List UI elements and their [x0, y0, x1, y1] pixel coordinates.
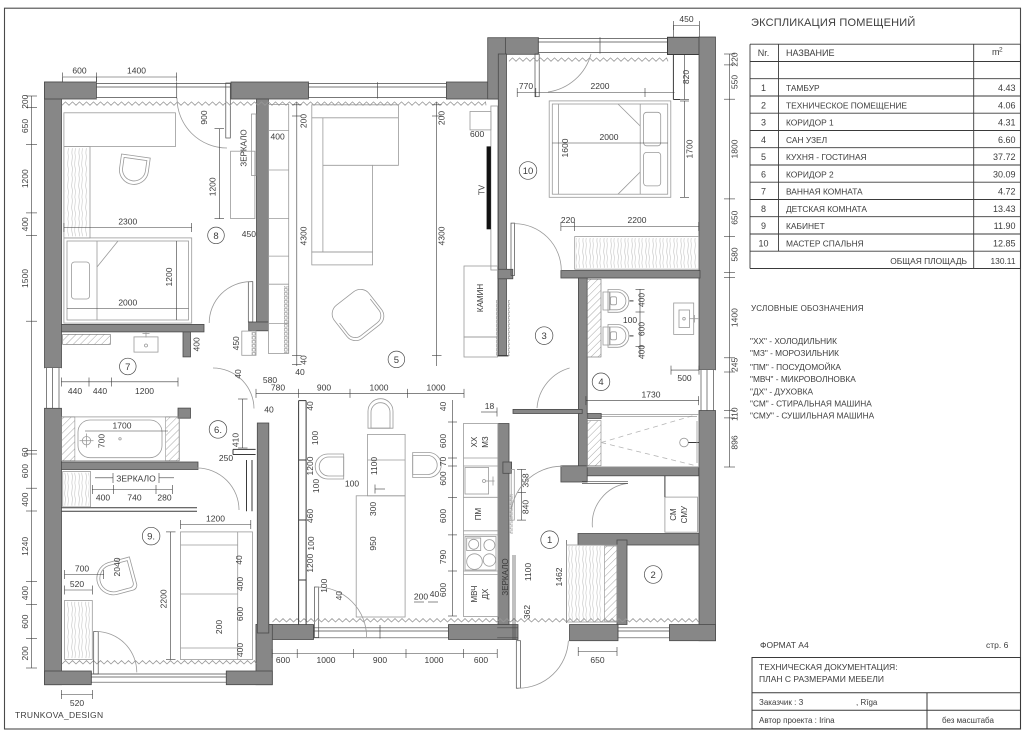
svg-text:40: 40	[430, 589, 440, 599]
svg-text:без масштаба: без масштаба	[942, 716, 994, 725]
svg-text:4300: 4300	[437, 226, 447, 245]
svg-text:1800: 1800	[730, 139, 740, 158]
svg-text:2: 2	[999, 47, 1003, 54]
svg-text:5: 5	[761, 152, 766, 162]
svg-text:СМУ: СМУ	[680, 505, 689, 523]
svg-text:700: 700	[75, 564, 89, 574]
svg-text:, Rīga: , Rīga	[856, 698, 878, 707]
svg-text:10: 10	[523, 166, 534, 177]
svg-text:3: 3	[761, 118, 766, 128]
svg-text:1462: 1462	[554, 567, 564, 586]
svg-text:1000: 1000	[427, 382, 446, 392]
svg-text:40: 40	[334, 591, 344, 601]
svg-text:6.60: 6.60	[998, 135, 1016, 145]
svg-text:КОРИДОР 1: КОРИДОР 1	[786, 118, 834, 128]
svg-text:100: 100	[623, 315, 637, 325]
svg-text:"МЗ" - МОРОЗИЛЬНИК: "МЗ" - МОРОЗИЛЬНИК	[750, 348, 839, 358]
svg-text:1400: 1400	[127, 66, 146, 76]
svg-text:1700: 1700	[113, 421, 132, 431]
svg-text:"МВЧ" - МИКРОВОЛНОВКА: "МВЧ" - МИКРОВОЛНОВКА	[750, 374, 856, 384]
svg-text:400: 400	[192, 337, 202, 351]
svg-text:4.06: 4.06	[998, 101, 1016, 111]
svg-text:400: 400	[271, 132, 285, 142]
svg-text:9: 9	[761, 221, 766, 231]
svg-text:580: 580	[730, 247, 740, 261]
svg-text:580: 580	[263, 375, 277, 385]
svg-text:КУХНЯ - ГОСТИНАЯ: КУХНЯ - ГОСТИНАЯ	[786, 152, 867, 162]
svg-text:МЗ: МЗ	[481, 436, 490, 448]
svg-text:400: 400	[96, 493, 110, 503]
svg-text:600: 600	[438, 509, 448, 523]
svg-text:400: 400	[20, 586, 30, 600]
svg-text:200: 200	[414, 592, 428, 602]
svg-text:8: 8	[213, 231, 218, 242]
svg-text:2: 2	[761, 101, 766, 111]
svg-text:3: 3	[541, 331, 546, 342]
svg-text:60: 60	[20, 447, 30, 457]
svg-text:770: 770	[519, 81, 533, 91]
svg-text:250: 250	[219, 453, 233, 463]
svg-text:Заказчик : З: Заказчик : З	[759, 698, 804, 707]
svg-text:450: 450	[242, 229, 256, 239]
svg-text:1240: 1240	[20, 537, 30, 556]
svg-text:37.72: 37.72	[993, 152, 1016, 162]
svg-text:7: 7	[125, 362, 130, 373]
svg-text:1600: 1600	[560, 138, 570, 157]
svg-text:1: 1	[547, 535, 552, 546]
svg-text:1: 1	[761, 83, 766, 93]
svg-text:"СМУ" - СУШИЛЬНАЯ МАШИНА: "СМУ" - СУШИЛЬНАЯ МАШИНА	[750, 411, 875, 421]
svg-text:40: 40	[305, 401, 315, 411]
svg-text:САН УЗЕЛ: САН УЗЕЛ	[786, 135, 827, 145]
svg-text:1200: 1200	[305, 456, 315, 475]
svg-text:ДХ: ДХ	[481, 588, 490, 599]
svg-text:1700: 1700	[685, 139, 695, 158]
svg-text:1100: 1100	[369, 457, 379, 476]
svg-text:Автор проекта : Irina: Автор проекта : Irina	[759, 716, 835, 725]
svg-text:220: 220	[730, 52, 740, 66]
svg-text:900: 900	[373, 655, 387, 665]
svg-text:1730: 1730	[642, 389, 661, 399]
svg-text:950: 950	[368, 536, 378, 550]
svg-text:ТАМБУР: ТАМБУР	[786, 83, 820, 93]
svg-text:2000: 2000	[118, 298, 137, 308]
svg-text:2200: 2200	[628, 215, 647, 225]
svg-text:40: 40	[299, 355, 309, 365]
svg-text:100: 100	[319, 578, 329, 592]
svg-text:220: 220	[561, 215, 575, 225]
svg-text:2040: 2040	[112, 557, 122, 576]
svg-text:40: 40	[234, 555, 244, 565]
svg-text:100: 100	[306, 536, 316, 550]
svg-text:"ХХ" - ХОЛОДИЛЬНИК: "ХХ" - ХОЛОДИЛЬНИК	[750, 336, 837, 346]
svg-text:100: 100	[311, 479, 321, 493]
svg-text:820: 820	[681, 70, 691, 84]
svg-text:2300: 2300	[118, 217, 137, 227]
svg-text:500: 500	[677, 373, 691, 383]
svg-text:900: 900	[317, 382, 331, 392]
svg-text:600: 600	[470, 129, 484, 139]
svg-text:КАБИНЕТ: КАБИНЕТ	[786, 221, 825, 231]
svg-text:410: 410	[231, 433, 241, 447]
svg-text:200: 200	[214, 620, 224, 634]
svg-text:300: 300	[368, 502, 378, 516]
svg-text:600: 600	[20, 464, 30, 478]
svg-text:700: 700	[97, 434, 107, 448]
svg-text:ЗЕРКАЛО: ЗЕРКАЛО	[501, 558, 510, 595]
svg-text:100: 100	[345, 479, 359, 489]
svg-text:12.85: 12.85	[993, 239, 1016, 249]
svg-text:600: 600	[438, 583, 448, 597]
svg-text:245: 245	[730, 358, 740, 372]
svg-text:400: 400	[20, 217, 30, 231]
svg-text:УСЛОВНЫЕ ОБОЗНАЧЕНИЯ: УСЛОВНЫЕ ОБОЗНАЧЕНИЯ	[751, 304, 864, 313]
svg-text:4.43: 4.43	[998, 83, 1016, 93]
svg-text:450: 450	[231, 336, 241, 350]
svg-text:2200: 2200	[591, 81, 610, 91]
svg-text:КАМИН: КАМИН	[476, 284, 485, 312]
svg-text:600: 600	[276, 655, 290, 665]
svg-text:4.72: 4.72	[998, 187, 1016, 197]
svg-text:TRUNKOVA_DESIGN: TRUNKOVA_DESIGN	[15, 710, 103, 720]
svg-text:5: 5	[394, 355, 399, 366]
svg-text:ТЕХНИЧЕСКАЯ ДОКУМЕНТАЦИЯ:: ТЕХНИЧЕСКАЯ ДОКУМЕНТАЦИЯ:	[759, 662, 898, 672]
svg-text:ОБЩАЯ ПЛОЩАДЬ: ОБЩАЯ ПЛОЩАДЬ	[890, 256, 967, 266]
svg-text:НАЗВАНИЕ: НАЗВАНИЕ	[786, 48, 835, 58]
svg-text:400: 400	[235, 643, 245, 657]
svg-text:650: 650	[20, 119, 30, 133]
svg-text:110: 110	[730, 407, 740, 421]
svg-text:840: 840	[521, 500, 531, 514]
svg-text:"СМ" - СТИРАЛЬНАЯ МАШИНА: "СМ" - СТИРАЛЬНАЯ МАШИНА	[750, 399, 872, 409]
svg-text:790: 790	[438, 550, 448, 564]
svg-text:10: 10	[758, 239, 768, 249]
svg-text:Nr.: Nr.	[758, 48, 770, 58]
svg-text:900: 900	[199, 110, 209, 124]
svg-text:6: 6	[761, 170, 766, 180]
svg-text:18: 18	[485, 401, 495, 411]
svg-text:ФОРМАТ А4: ФОРМАТ А4	[760, 640, 809, 650]
svg-text:ТЕХНИЧЕСКОЕ ПОМЕЩЕНИЕ: ТЕХНИЧЕСКОЕ ПОМЕЩЕНИЕ	[786, 101, 907, 111]
svg-text:1000: 1000	[370, 382, 389, 392]
svg-text:440: 440	[68, 386, 82, 396]
svg-text:650: 650	[590, 655, 604, 665]
svg-text:11.90: 11.90	[994, 221, 1016, 231]
svg-text:ЭКСПЛИКАЦИЯ ПОМЕЩЕНИЙ: ЭКСПЛИКАЦИЯ ПОМЕЩЕНИЙ	[751, 16, 916, 29]
svg-text:4.31: 4.31	[998, 118, 1016, 128]
svg-text:400: 400	[637, 293, 647, 307]
svg-text:стр. 6: стр. 6	[986, 640, 1009, 650]
svg-text:ВАННАЯ КОМНАТА: ВАННАЯ КОМНАТА	[786, 187, 863, 197]
svg-text:9.: 9.	[147, 532, 155, 543]
svg-text:1200: 1200	[135, 386, 154, 396]
svg-text:600: 600	[474, 655, 488, 665]
svg-text:40: 40	[264, 404, 274, 414]
svg-text:520: 520	[70, 579, 84, 589]
svg-text:1500: 1500	[20, 269, 30, 288]
svg-text:200: 200	[20, 94, 30, 108]
svg-text:600: 600	[235, 607, 245, 621]
svg-text:1200: 1200	[20, 169, 30, 188]
svg-text:ПЛАН С РАЗМЕРАМИ МЕБЕЛИ: ПЛАН С РАЗМЕРАМИ МЕБЕЛИ	[759, 674, 884, 684]
svg-text:СМ: СМ	[669, 508, 678, 521]
svg-text:650: 650	[730, 210, 740, 224]
svg-text:896: 896	[730, 435, 740, 449]
svg-text:70: 70	[438, 457, 448, 467]
svg-text:30.09: 30.09	[993, 170, 1016, 180]
svg-text:130.11: 130.11	[991, 256, 1016, 266]
svg-text:600: 600	[438, 471, 448, 485]
svg-text:1000: 1000	[425, 655, 444, 665]
svg-text:1400: 1400	[730, 308, 740, 327]
svg-text:1100: 1100	[523, 563, 533, 582]
svg-text:600: 600	[637, 322, 647, 336]
svg-text:"ДХ" - ДУХОВКА: "ДХ" - ДУХОВКА	[750, 387, 813, 397]
svg-text:440: 440	[93, 386, 107, 396]
svg-text:6.: 6.	[214, 425, 222, 436]
svg-text:200: 200	[437, 111, 447, 125]
svg-text:600: 600	[438, 434, 448, 448]
svg-text:200: 200	[299, 114, 309, 128]
svg-text:200: 200	[20, 646, 30, 660]
svg-text:600: 600	[72, 66, 86, 76]
svg-text:1200: 1200	[206, 514, 225, 524]
svg-text:ХХ: ХХ	[470, 436, 479, 447]
svg-text:40: 40	[295, 367, 305, 377]
svg-text:400: 400	[235, 577, 245, 591]
svg-text:400: 400	[637, 345, 647, 359]
svg-text:1000: 1000	[317, 655, 336, 665]
svg-text:400: 400	[20, 492, 30, 506]
svg-text:2: 2	[651, 570, 656, 581]
svg-text:280: 280	[157, 493, 171, 503]
svg-text:"ПМ" - ПОСУДОМОЙКА: "ПМ" - ПОСУДОМОЙКА	[750, 361, 841, 372]
svg-text:8: 8	[761, 204, 766, 214]
svg-text:2000: 2000	[600, 132, 619, 142]
svg-text:100: 100	[310, 431, 320, 445]
svg-text:450: 450	[679, 14, 693, 24]
svg-text:362: 362	[522, 605, 532, 619]
svg-text:1200: 1200	[305, 553, 315, 572]
svg-text:7: 7	[761, 187, 766, 197]
svg-text:ПМ: ПМ	[474, 507, 483, 520]
svg-text:4: 4	[761, 135, 766, 145]
svg-text:ЗЕРКАЛО: ЗЕРКАЛО	[116, 474, 156, 484]
svg-text:4300: 4300	[299, 226, 309, 245]
svg-text:ЗЕРКАЛО: ЗЕРКАЛО	[240, 129, 249, 166]
svg-text:40: 40	[438, 402, 448, 412]
svg-text:40: 40	[233, 369, 243, 379]
svg-text:13.43: 13.43	[993, 204, 1016, 214]
svg-text:740: 740	[127, 493, 141, 503]
svg-text:TV: TV	[478, 184, 487, 195]
svg-text:520: 520	[70, 698, 84, 708]
svg-text:МВЧ: МВЧ	[470, 586, 479, 603]
svg-text:КОРИДОР 2: КОРИДОР 2	[786, 170, 834, 180]
svg-text:1200: 1200	[208, 177, 218, 196]
svg-text:1200: 1200	[164, 267, 174, 286]
svg-text:4: 4	[598, 377, 603, 388]
svg-text:550: 550	[730, 75, 740, 89]
svg-text:ДЕТСКАЯ КОМНАТА: ДЕТСКАЯ КОМНАТА	[786, 204, 867, 214]
svg-text:600: 600	[20, 614, 30, 628]
svg-text:МАСТЕР СПАЛЬНЯ: МАСТЕР СПАЛЬНЯ	[786, 239, 864, 249]
svg-text:460: 460	[305, 509, 315, 523]
svg-text:2200: 2200	[159, 589, 169, 608]
